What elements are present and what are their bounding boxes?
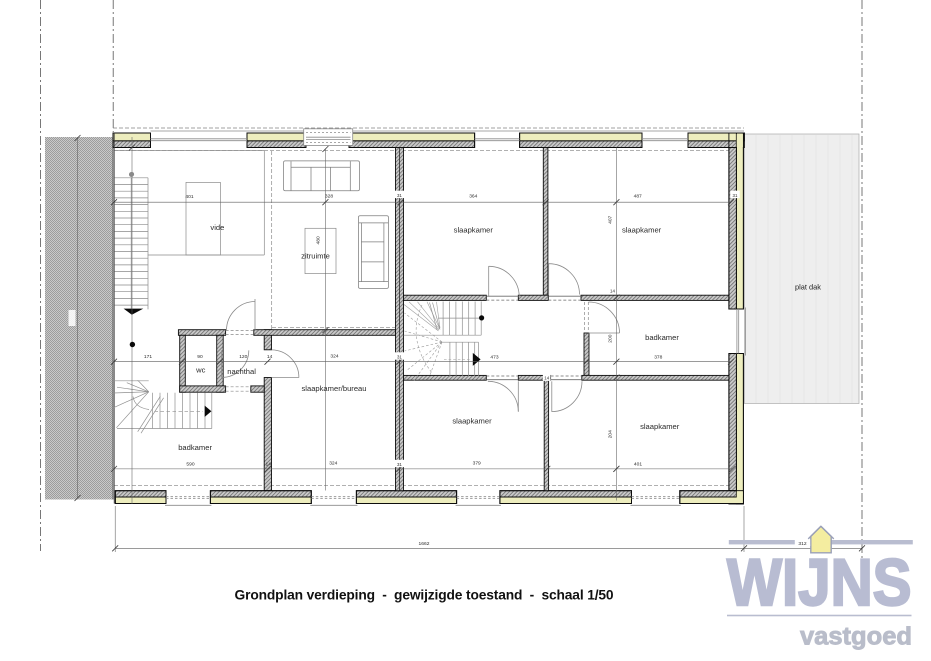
svg-text:487: 487 [634,193,642,199]
svg-text:401: 401 [634,462,642,468]
svg-text:328: 328 [325,194,333,200]
svg-text:slaapkamer/bureau: slaapkamer/bureau [301,384,366,393]
svg-text:31: 31 [397,193,402,198]
svg-text:324: 324 [329,461,337,467]
svg-text:14: 14 [610,289,615,294]
svg-text:14: 14 [267,354,273,360]
svg-text:slaapkamer: slaapkamer [640,422,680,431]
svg-text:badkamer: badkamer [178,443,212,452]
svg-text:378: 378 [654,355,662,361]
svg-text:nachthal: nachthal [227,367,256,376]
svg-text:1662: 1662 [419,541,430,547]
svg-text:31: 31 [733,193,738,198]
svg-text:407: 407 [607,215,613,223]
svg-text:vastgoed: vastgoed [800,623,912,651]
svg-text:slaapkamer: slaapkamer [622,225,662,234]
svg-text:zitruimte: zitruimte [301,251,330,260]
svg-text:slaapkamer: slaapkamer [452,417,492,426]
svg-text:31: 31 [397,355,402,360]
svg-text:badkamer: badkamer [645,333,679,342]
svg-text:379: 379 [473,461,481,467]
svg-text:480: 480 [316,236,322,244]
svg-text:473: 473 [490,354,498,360]
svg-text:200: 200 [608,334,614,342]
svg-text:90: 90 [197,354,203,360]
svg-text:14: 14 [265,461,271,467]
svg-text:204: 204 [608,430,614,438]
svg-text:31: 31 [397,462,402,467]
svg-text:14: 14 [544,376,549,381]
svg-text:slaapkamer: slaapkamer [454,226,494,235]
svg-text:WIJNS: WIJNS [727,545,912,619]
svg-text:wc: wc [195,366,205,375]
svg-text:120: 120 [239,354,247,360]
svg-text:401: 401 [185,194,193,200]
svg-text:Grondplan verdieping - gewij: Grondplan verdieping - gewijzigde toesta… [235,587,614,602]
svg-text:590: 590 [186,461,194,467]
svg-text:324: 324 [330,354,338,360]
svg-text:171: 171 [144,354,152,360]
svg-text:vide: vide [210,223,224,232]
svg-text:364: 364 [469,194,477,200]
svg-text:plat dak: plat dak [795,282,821,291]
